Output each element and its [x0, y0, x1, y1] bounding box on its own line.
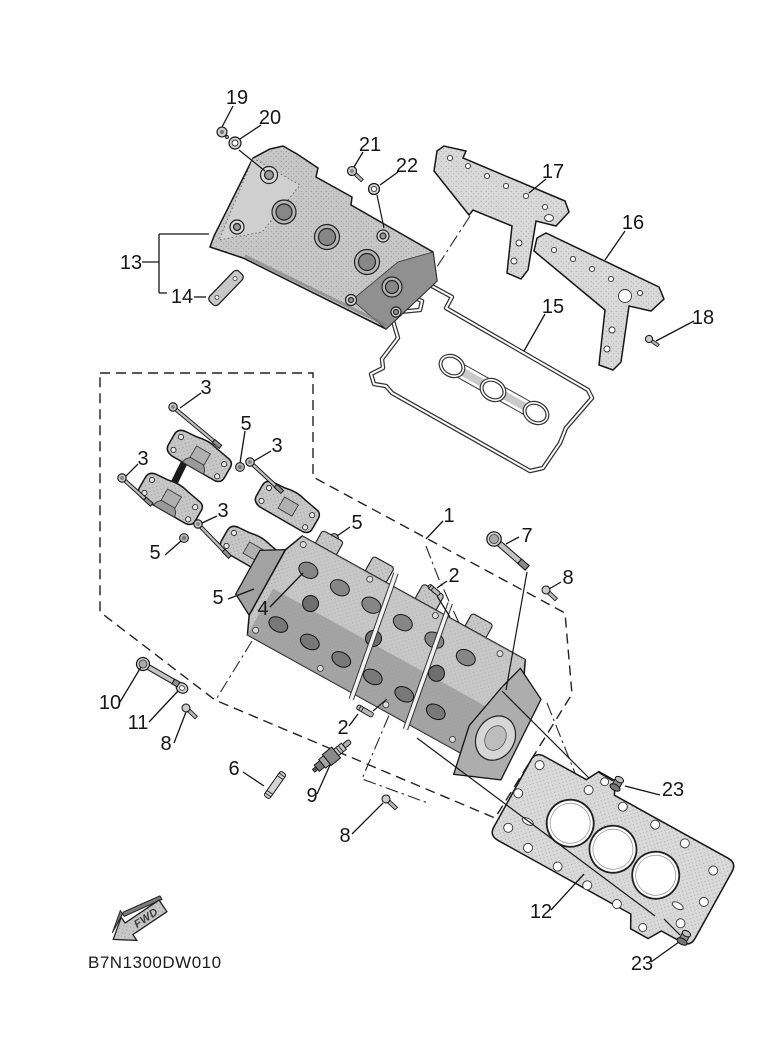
stud-6 — [264, 771, 287, 800]
callout-5a: 5 — [240, 413, 251, 435]
callout-3c: 3 — [137, 448, 148, 470]
callout-8a: 8 — [562, 567, 573, 589]
callout-18: 18 — [692, 307, 714, 329]
callout-2b: 2 — [337, 717, 348, 739]
fwd-arrow: FWD — [102, 888, 173, 951]
callout-17: 17 — [542, 161, 564, 183]
stud-2-lower — [356, 704, 374, 717]
damper-plate-14 — [207, 269, 245, 308]
bolt-10 — [134, 655, 182, 690]
callout-16: 16 — [622, 212, 644, 234]
callout-8b: 8 — [160, 733, 171, 755]
bolt-18 — [644, 334, 660, 349]
drawing-code: B7N1300DW010 — [88, 953, 222, 972]
callout-3a: 3 — [200, 377, 211, 399]
dowel-5 — [236, 463, 245, 472]
callout-14: 14 — [171, 286, 193, 308]
callout-8c: 8 — [339, 825, 350, 847]
callout-11: 11 — [128, 712, 149, 734]
callout-12: 12 — [530, 901, 552, 923]
washer-22 — [369, 184, 380, 195]
callout-3b: 3 — [271, 435, 282, 457]
callout-7: 7 — [521, 525, 532, 547]
bolt-19 — [217, 127, 229, 139]
callout-5b: 5 — [149, 542, 160, 564]
callout-23b: 23 — [631, 953, 653, 975]
bolt-21 — [346, 165, 366, 184]
callout-9: 9 — [306, 785, 317, 807]
callout-5d: 5 — [351, 512, 362, 534]
cam-cap — [252, 476, 324, 535]
callout-6: 6 — [228, 758, 239, 780]
callout-13: 13 — [120, 252, 142, 274]
exploded-view-drawing: FWD B7N1300DW010 — [0, 0, 770, 1064]
callout-23a: 23 — [662, 779, 684, 801]
callout-3d: 3 — [217, 500, 228, 522]
callout-5c: 5 — [212, 587, 223, 609]
callout-15: 15 — [542, 296, 564, 318]
spark-plug-9 — [309, 736, 354, 776]
callout-10: 10 — [99, 692, 121, 714]
callout-20: 20 — [259, 107, 281, 129]
callout-1: 1 — [443, 505, 454, 527]
parts-diagram-page: FWD B7N1300DW010 — [0, 0, 770, 1064]
callout-21: 21 — [359, 134, 381, 156]
callout-22: 22 — [396, 155, 418, 177]
head-gasket-12 — [483, 740, 743, 958]
callout-2a: 2 — [448, 565, 459, 587]
callout-4: 4 — [257, 598, 268, 620]
washer-20 — [229, 137, 241, 149]
callout-19: 19 — [226, 87, 248, 109]
bolt-8-right — [540, 584, 559, 602]
bolt-8-bottom — [380, 793, 399, 811]
